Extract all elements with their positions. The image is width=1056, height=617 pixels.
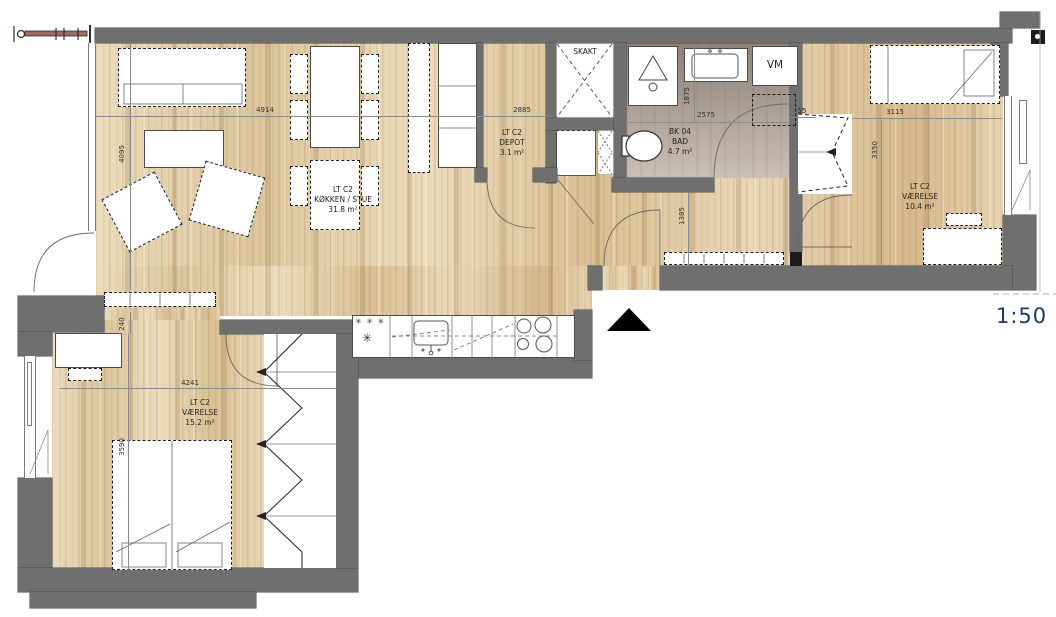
tall-cabinet-dashed xyxy=(408,43,430,173)
washing-machine: VM xyxy=(752,46,798,86)
dining-chair xyxy=(290,54,308,94)
shower-tray xyxy=(628,46,678,106)
window-east-sash xyxy=(1019,100,1027,164)
room-area: 3.1 m² xyxy=(482,148,542,158)
wall-north-east-outer xyxy=(1000,12,1040,28)
anchor-dot-icon xyxy=(1035,34,1040,39)
dim-living-width: 4914 xyxy=(245,106,285,114)
wall-bath-south xyxy=(612,178,714,192)
window-wing-sash xyxy=(27,362,32,426)
wall-wing-north-right xyxy=(220,320,352,334)
dimline-living-width xyxy=(96,116,553,117)
dim-niche-offset: 55 xyxy=(782,107,822,115)
dimline-bedroom-south-width xyxy=(60,388,336,389)
wall-bath-west xyxy=(614,43,626,183)
dimline-bedroom-east-width xyxy=(852,118,1002,119)
room-name: DEPOT xyxy=(482,138,542,148)
wall-wing-west-lower xyxy=(18,478,52,568)
wall-entry-stub xyxy=(588,266,602,290)
bed-east xyxy=(870,45,1000,104)
dim-bedroom-south-depth: 3590 xyxy=(118,427,126,467)
dining-chair xyxy=(361,54,379,94)
room-label-bedroom-south: LT C2 VÆRELSE 15.2 m² xyxy=(165,398,235,427)
entrance-marker-icon xyxy=(607,308,651,331)
desk-wing xyxy=(55,333,122,368)
wall-wing-south xyxy=(18,568,358,592)
dimline-bath-width xyxy=(626,122,788,123)
dim-bath-depth: 1875 xyxy=(683,76,691,116)
tall-cabinet xyxy=(438,43,477,168)
wardrobe-east xyxy=(798,114,852,194)
wall-bath-east-cap xyxy=(790,252,802,266)
wall-depot-south-a xyxy=(475,168,487,182)
wall-south-east-band xyxy=(660,266,1012,290)
desk-wing-chair xyxy=(68,368,102,381)
dim-bedroom-south-width: 4241 xyxy=(170,379,210,387)
wall-north xyxy=(95,28,1012,43)
wall-depot-south-b xyxy=(533,168,557,182)
dim-living-depth: 4095 xyxy=(118,134,126,174)
wall-wing-east xyxy=(336,334,358,568)
wall-depot-shaft xyxy=(546,43,556,183)
wall-kitchen-south xyxy=(345,358,592,378)
scale-label: 1:50 xyxy=(996,304,1047,328)
room-code: LT C2 xyxy=(165,398,235,408)
dining-chair xyxy=(290,100,308,140)
sofa xyxy=(118,48,246,107)
room-label-bedroom-east: LT C2 VÆRELSE 10.4 m² xyxy=(890,182,950,211)
room-name: VÆRELSE xyxy=(165,408,235,418)
kitchen-counter xyxy=(352,315,575,358)
room-code: LT C2 xyxy=(482,128,542,138)
dim-cabinet-depth: 240 xyxy=(118,304,126,344)
dimline-living-depth xyxy=(130,43,131,290)
dim-bath-width: 2575 xyxy=(686,111,726,119)
entry-mat-strip xyxy=(664,252,784,265)
room-name: KØKKEN / STUE xyxy=(305,195,381,205)
floor-entry-gap xyxy=(602,266,660,290)
dimline-bedroom-south-depth xyxy=(128,334,129,570)
room-code: BK 04 xyxy=(650,127,710,137)
room-code: LT C2 xyxy=(305,185,381,195)
balcony-door-arc xyxy=(34,233,94,292)
room-area: 10.4 m² xyxy=(890,202,950,212)
room-name: BAD xyxy=(650,137,710,147)
fridge-star-icon: ✳ xyxy=(362,331,372,345)
window-bedroom-east xyxy=(1004,96,1012,215)
dimline-hall-width xyxy=(688,192,689,266)
dim-depot-span: 2885 xyxy=(502,106,542,114)
wall-kitchen-column xyxy=(574,310,592,360)
room-label-kitchen-living: LT C2 KØKKEN / STUE 31.8 m² xyxy=(305,185,381,214)
room-area: 4.7 m² xyxy=(650,147,710,157)
desk-east xyxy=(923,228,1002,265)
room-code: LT C2 xyxy=(890,182,950,192)
room-area: 31.8 m² xyxy=(305,205,381,215)
chair-east xyxy=(946,213,982,226)
room-name: VÆRELSE xyxy=(890,192,950,202)
window-living-west xyxy=(88,43,96,231)
dimline-cabinet-depth xyxy=(130,312,131,334)
floor-plan: ✳ ✳ ✳ ✳ VM 4914 2885 4095 2575 1875 55 3… xyxy=(0,0,1056,617)
room-label-bath: BK 04 BAD 4.7 m² xyxy=(650,127,710,156)
dim-bedroom-east-depth: 3350 xyxy=(871,130,879,170)
double-bed-wing xyxy=(112,440,232,570)
dim-hall-width: 1385 xyxy=(678,196,686,236)
wall-shaft-south xyxy=(546,118,616,130)
room-label-depot: LT C2 DEPOT 3.1 m² xyxy=(482,128,542,157)
dim-bedroom-east-width: 3115 xyxy=(875,108,915,116)
dining-chair xyxy=(361,100,379,140)
dining-table xyxy=(310,46,360,148)
dimline-bedroom-east-depth xyxy=(881,120,882,266)
washing-machine-label: VM xyxy=(753,59,797,71)
wall-wing-west-upper xyxy=(18,332,52,356)
duct-strip xyxy=(598,130,614,174)
tie-rod-icon xyxy=(14,25,90,43)
wall-wing-south-outer xyxy=(30,592,256,608)
wall-living-southwest xyxy=(18,296,104,332)
wardrobe-wing xyxy=(264,334,336,568)
dimline-niche-offset xyxy=(790,117,816,118)
freezer-stars-icon: ✳ ✳ ✳ xyxy=(355,317,385,326)
room-area: 15.2 m² xyxy=(165,418,235,428)
shaft-label: SKAKT xyxy=(556,47,614,56)
tech-niche xyxy=(556,130,596,176)
